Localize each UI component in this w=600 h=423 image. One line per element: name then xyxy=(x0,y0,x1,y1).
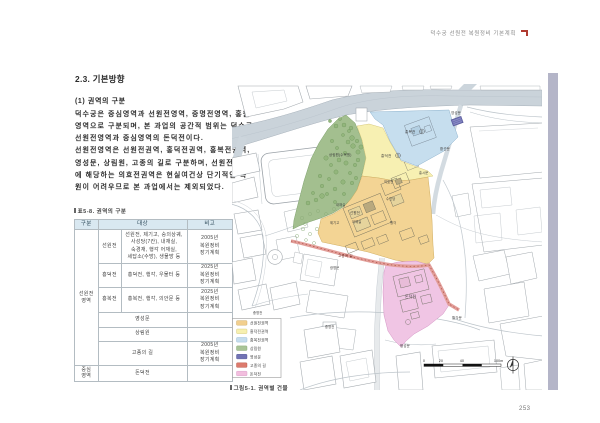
svg-text:고종의 길: 고종의 길 xyxy=(338,253,353,258)
svg-text:흥덕전권역: 흥덕전권역 xyxy=(250,329,269,334)
svg-text:어재실: 어재실 xyxy=(352,219,361,224)
svg-text:40: 40 xyxy=(460,359,464,363)
svg-text:상림원: 상림원 xyxy=(250,346,261,351)
svg-text:선원전권역: 선원전권역 xyxy=(250,321,269,326)
svg-text:20: 20 xyxy=(439,359,443,363)
svg-text:중명전: 중명전 xyxy=(325,324,334,329)
svg-text:흥시문: 흥시문 xyxy=(419,170,428,175)
svg-text:영성문: 영성문 xyxy=(451,110,461,115)
svg-text:수인당: 수인당 xyxy=(386,196,395,201)
svg-text:흥복전권역: 흥복전권역 xyxy=(250,338,269,343)
svg-text:환선문: 환선문 xyxy=(440,146,450,151)
svg-text:100m: 100m xyxy=(494,359,503,363)
svg-text:평성문: 평성문 xyxy=(400,343,410,348)
svg-text:흥복전: 흥복전 xyxy=(405,129,416,134)
svg-text:제기고: 제기고 xyxy=(330,220,339,225)
svg-text:돈덕전: 돈덕전 xyxy=(250,371,261,376)
svg-text:영성문: 영성문 xyxy=(250,354,261,359)
svg-text:상림원(수목원): 상림원(수목원) xyxy=(329,152,352,157)
svg-text:광명문: 광명문 xyxy=(330,265,339,270)
svg-text:돈덕전: 돈덕전 xyxy=(405,294,416,299)
svg-text:선원전: 선원전 xyxy=(350,210,360,215)
svg-text:의효전: 의효전 xyxy=(384,179,393,184)
svg-text:행각: 행각 xyxy=(390,220,396,225)
svg-text:월각문: 월각문 xyxy=(452,315,462,320)
svg-text:내재실: 내재실 xyxy=(336,202,345,207)
svg-text:고종의 길: 고종의 길 xyxy=(250,363,266,368)
svg-text:0: 0 xyxy=(423,359,425,363)
svg-text:흥덕전: 흥덕전 xyxy=(381,153,392,158)
svg-text:중명전: 중명전 xyxy=(253,310,262,315)
